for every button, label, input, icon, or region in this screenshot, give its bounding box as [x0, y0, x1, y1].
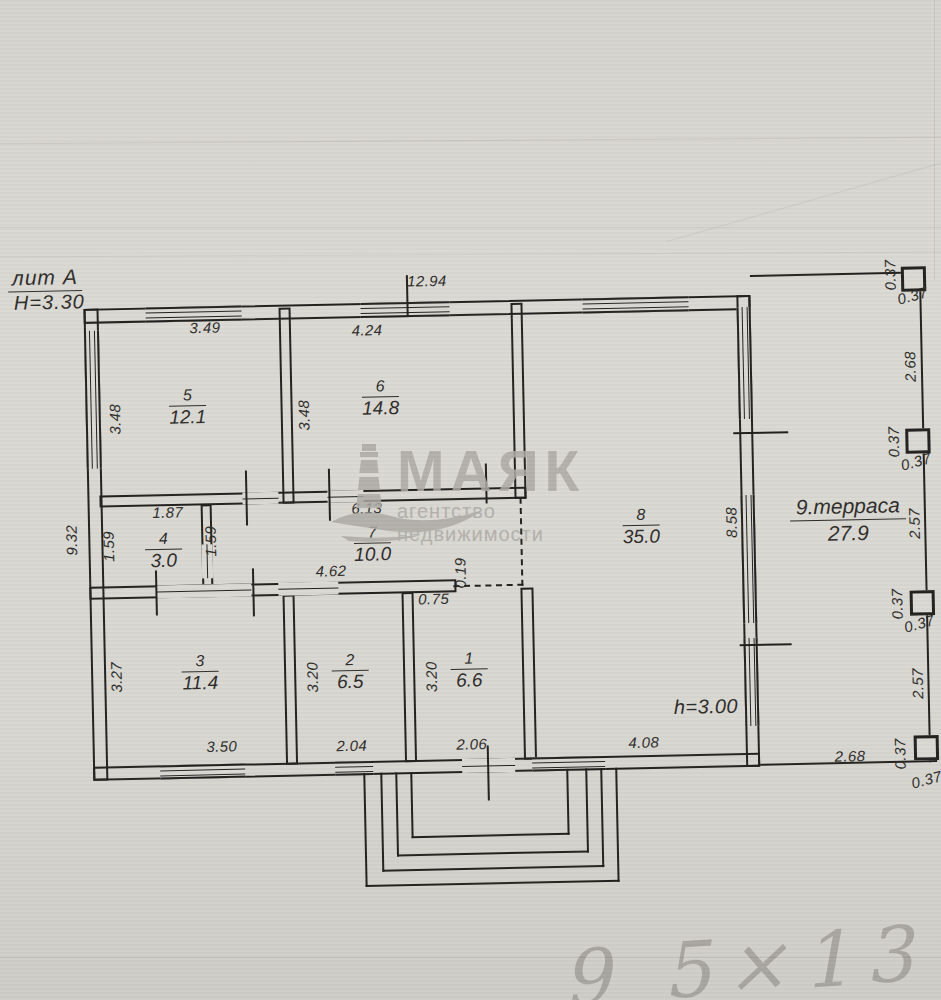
wall — [401, 592, 417, 762]
dimension-label: 0.37 — [899, 449, 933, 473]
room-label-3: 3 11.4 — [181, 653, 219, 694]
room-label-8: 8 35.0 — [622, 507, 660, 548]
dimension-label: 1.59 — [100, 531, 118, 562]
door-axis-line — [155, 570, 158, 615]
dimension-label: 0.37 — [881, 259, 899, 290]
room-area: 27.9 — [828, 520, 869, 545]
dimension-label: 6.13 — [351, 499, 382, 517]
room-area: 6.5 — [337, 671, 364, 693]
building-height-label: Н=3.30 — [14, 290, 86, 314]
dimension-label: 0.37 — [902, 611, 936, 635]
porch-step — [410, 769, 569, 838]
room-area: 14.8 — [362, 397, 399, 420]
terrace-post — [914, 735, 940, 761]
window — [582, 296, 688, 313]
room-number: 8 — [622, 507, 659, 527]
room-area: 10.0 — [354, 543, 391, 566]
room-number: 7 — [354, 524, 391, 544]
dimension-label: 0.37 — [888, 588, 906, 619]
dimension-label: 1.87 — [152, 503, 183, 521]
floor-plan-drawing: лит А Н=3.30 — [0, 0, 941, 1000]
room-label-5: 5 12.1 — [169, 387, 207, 428]
litera-label: лит А — [8, 265, 82, 293]
room-number: 6 — [362, 378, 399, 398]
door-opening — [242, 492, 278, 505]
window — [741, 495, 758, 623]
room-label-1: 1 6.6 — [450, 650, 488, 691]
dimension-label: 0.75 — [418, 590, 449, 608]
wall — [520, 588, 537, 760]
dimension-label: 3.20 — [422, 661, 440, 692]
door-axis-line — [485, 463, 488, 503]
dimension-label: 9.32 — [63, 525, 81, 556]
handwritten-note: 9 5×13 — [559, 908, 930, 1000]
room-number: 4 — [145, 531, 182, 551]
room-label-7: 7 10.0 — [354, 524, 392, 565]
wall — [283, 595, 299, 765]
window — [84, 331, 102, 469]
dimension-label: 4.08 — [628, 733, 659, 751]
dimension-label: 1.59 — [202, 526, 220, 557]
room-label-terrace: 9.терраса 27.9 — [790, 494, 907, 546]
dimension-label: 2.57 — [905, 508, 923, 539]
wall — [510, 303, 526, 499]
room-area: 3.0 — [150, 549, 177, 571]
dimension-label: 3.48 — [106, 404, 124, 435]
room-area: 6.6 — [456, 669, 483, 691]
dimension-label: 4.24 — [351, 321, 382, 339]
window — [737, 307, 753, 419]
dimension-label: 0.19 — [451, 557, 469, 588]
room-number: 1 — [450, 650, 487, 670]
window — [744, 638, 760, 726]
room-number: 3 — [181, 653, 218, 673]
door-axis-line — [733, 431, 788, 434]
scanned-floor-plan: лит А Н=3.30 — [0, 0, 941, 1000]
dashed-boundary — [520, 498, 524, 586]
window — [360, 301, 449, 318]
ceiling-height-label: h=3.00 — [674, 695, 739, 719]
dimension-label: 8.58 — [722, 507, 740, 538]
dimension-label: 3.27 — [107, 662, 125, 693]
terrace-edge — [750, 271, 925, 277]
door-opening — [156, 583, 251, 598]
dimension-label: 2.06 — [456, 735, 487, 753]
room-number: 2 — [331, 652, 368, 672]
dimension-label: 2.68 — [834, 747, 865, 765]
dimension-label: 2.68 — [901, 351, 919, 382]
room-label-6: 6 14.8 — [362, 378, 400, 419]
room-number: 9.терраса — [790, 494, 906, 521]
dimension-label: 12.94 — [407, 272, 447, 290]
room-number: 5 — [169, 387, 206, 407]
room-label-4: 4 3.0 — [145, 531, 183, 572]
door-axis-line — [740, 643, 792, 646]
dimension-label: 3.50 — [206, 737, 237, 755]
room-area: 12.1 — [169, 406, 206, 429]
dimension-label: 2.04 — [336, 737, 367, 755]
dimension-label: 0.37 — [891, 738, 909, 769]
dimension-label: 3.49 — [189, 319, 220, 337]
wall — [279, 308, 295, 504]
room-area: 11.4 — [182, 672, 218, 695]
dimension-label: 2.57 — [909, 668, 927, 699]
room-area: 35.0 — [623, 525, 660, 548]
dimension-label: 4.62 — [315, 562, 346, 580]
dimension-label: 3.20 — [303, 662, 321, 693]
dimension-label: 3.48 — [295, 400, 313, 431]
dimension-label: 0.37 — [885, 426, 903, 457]
dimension-label: 0.37 — [909, 767, 941, 791]
window — [160, 764, 245, 780]
door-opening — [278, 582, 338, 596]
room-label-2: 2 6.5 — [331, 652, 369, 693]
